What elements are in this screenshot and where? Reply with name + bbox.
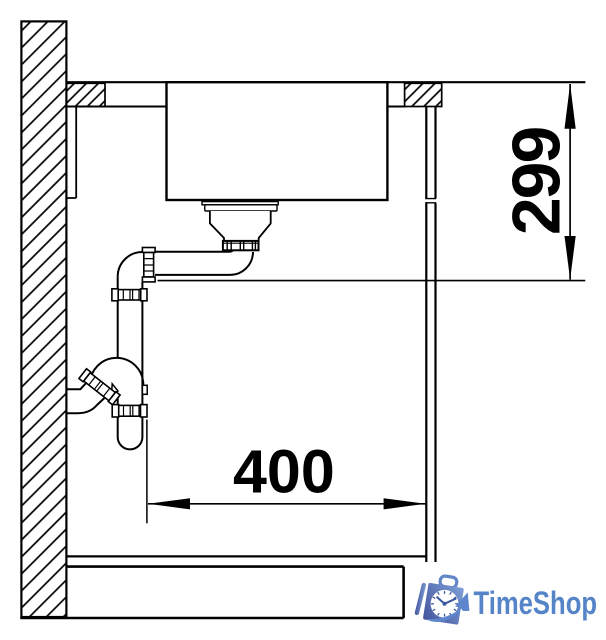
svg-text:TimeShop: TimeShop	[474, 585, 598, 622]
svg-text:400: 400	[233, 437, 335, 505]
svg-text:299: 299	[498, 127, 574, 235]
